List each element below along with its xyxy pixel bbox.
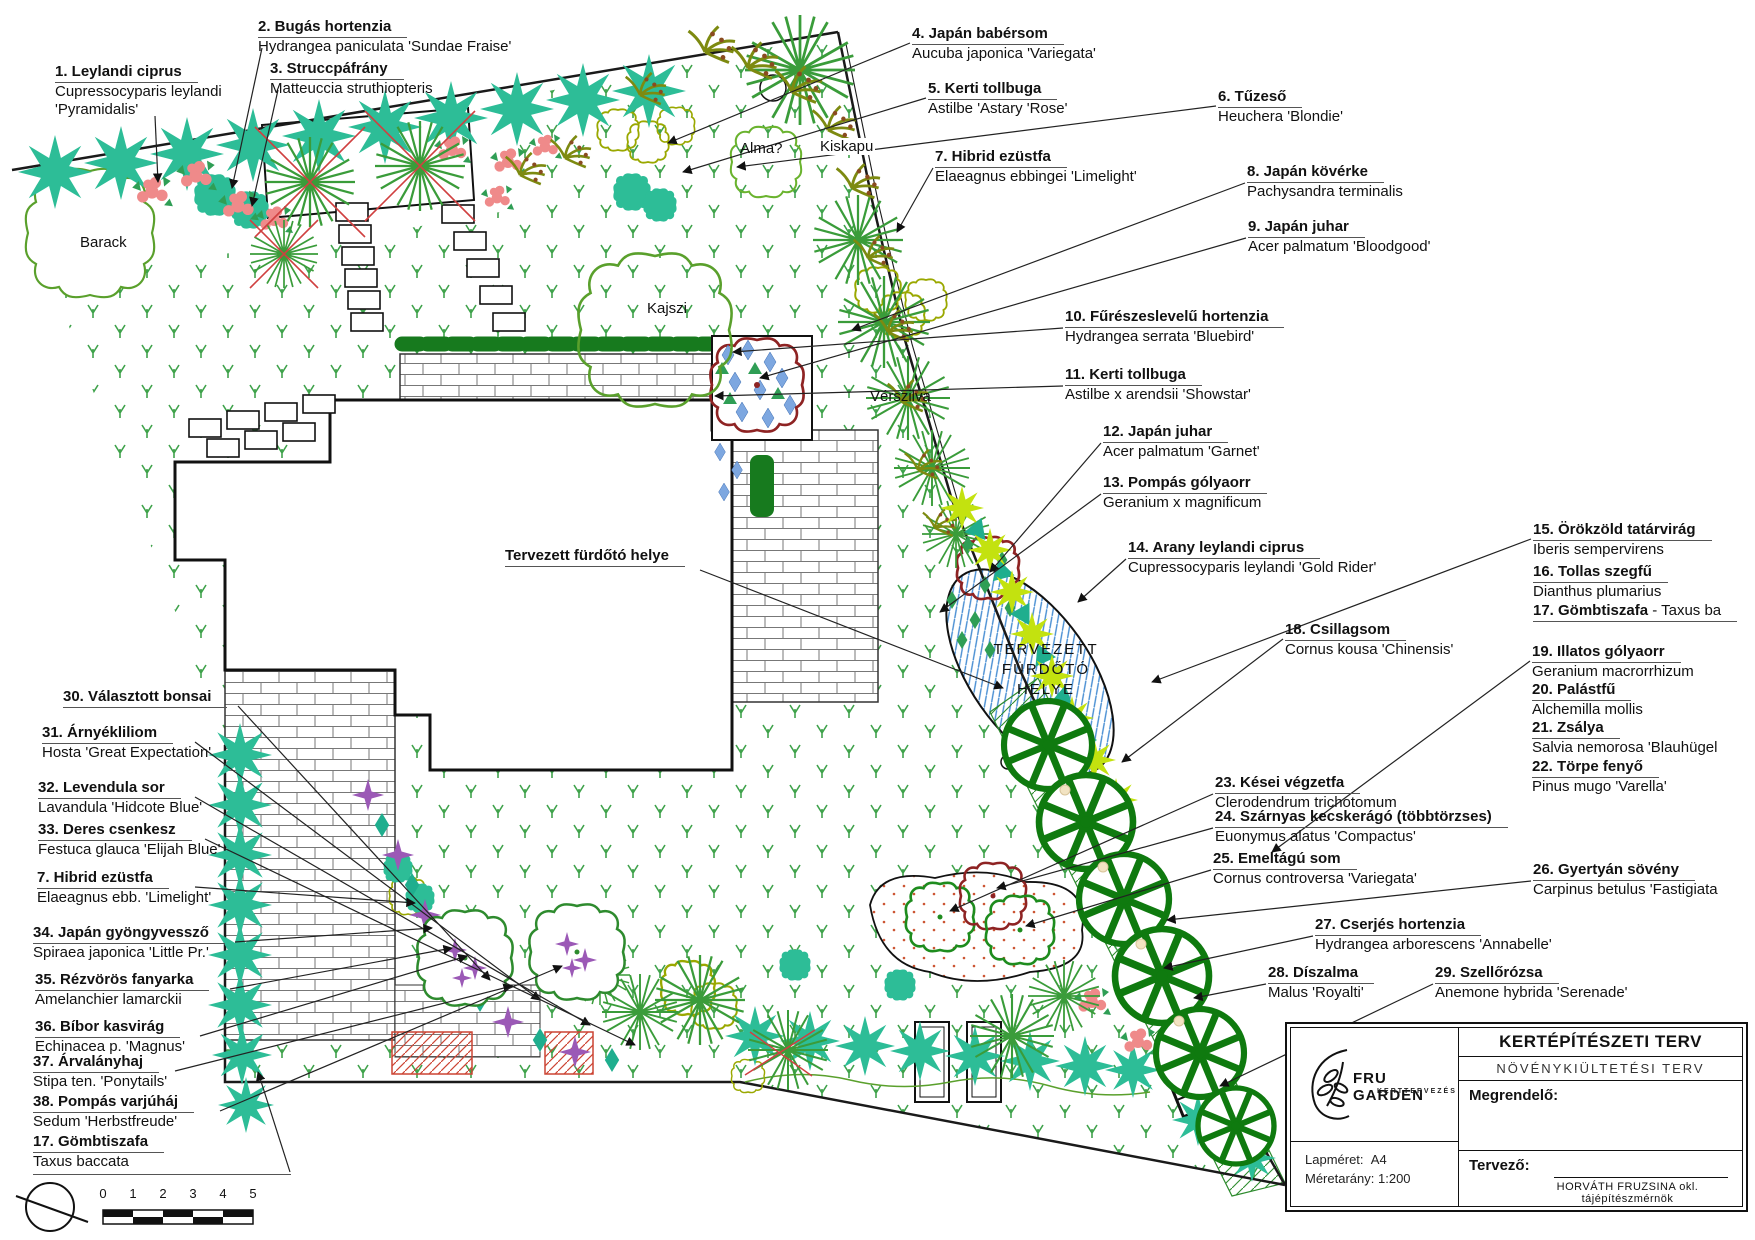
plant-label: 23. Kései végzetfa Clerodendrum trichoto… — [1215, 774, 1397, 812]
plant-label-latin: Carpinus betulus 'Fastigiata — [1533, 881, 1718, 899]
plant-label: 33. Deres csenkesz Festuca glauca 'Elija… — [38, 821, 221, 859]
plant-label-title: 27. Cserjés hortenzia — [1315, 916, 1481, 936]
designer-name: HORVÁTH FRUZSINA okl. tájépítészmérnök — [1519, 1181, 1736, 1205]
plant-label: 7. Hibrid ezüstfa Elaeagnus ebbingei 'Li… — [935, 148, 1137, 186]
plant-label-latin: Astilbe x arendsii 'Showstar' — [1065, 386, 1251, 404]
plant-label-title: 26. Gyertyán sövény — [1533, 861, 1695, 881]
plant-label-latin: Hosta 'Great Expectation' — [42, 744, 211, 762]
client-label: Megrendelő: — [1459, 1081, 1742, 1150]
plant-label-title: 7. Hibrid ezüstfa — [935, 148, 1067, 168]
leader-line — [1078, 559, 1126, 602]
plant-label-title: 24. Szárnyas kecskerágó (többtörzses) — [1215, 808, 1508, 828]
plant-label-latin: Geranium x magnificum — [1103, 494, 1267, 512]
plan-annotation: Kiskapu — [818, 138, 875, 155]
sheet-scale: Méretarány: 1:200 — [1305, 1169, 1458, 1188]
scale-tick: 2 — [159, 1186, 166, 1201]
plant-label-latin: Alchemilla mollis — [1532, 701, 1643, 719]
plant-label-title: 21. Zsálya — [1532, 719, 1620, 739]
signature-line — [1554, 1177, 1728, 1178]
plant-label-latin: Acer palmatum 'Bloodgood' — [1248, 238, 1431, 256]
plant-label-title: 28. Díszalma — [1268, 964, 1374, 984]
plant-label-title: 17. Gömbtiszafa - Taxus ba — [1533, 602, 1737, 622]
plant-label: 3. Struccpáfrány Matteuccia struthiopter… — [270, 60, 433, 98]
plant-label: 6. Tűzeső Heuchera 'Blondie' — [1218, 88, 1343, 126]
plant-label-latin: Aucuba japonica 'Variegata' — [912, 45, 1096, 63]
leader-line — [940, 494, 1101, 612]
plant-label-latin: Hydrangea serrata 'Bluebird' — [1065, 328, 1284, 346]
plant-label-title: 5. Kerti tollbuga — [928, 80, 1057, 100]
plant-label: 29. Szellőrózsa Anemone hybrida 'Serenad… — [1435, 964, 1628, 1002]
plant-label-latin: Anemone hybrida 'Serenade' — [1435, 984, 1628, 1002]
leader-line — [990, 443, 1101, 572]
plant-label-title: 34. Japán gyöngyvessző — [33, 924, 225, 944]
plant-label: 8. Japán kövérke Pachysandra terminalis — [1247, 163, 1403, 201]
plant-label: 35. Rézvörös fanyarka Amelanchier lamarc… — [35, 971, 209, 1009]
plant-label-title: Tervezett fürdőtó helye — [505, 547, 685, 567]
scale-tick: 0 — [99, 1186, 106, 1201]
plant-label: 31. Árnyékliliom Hosta 'Great Expectatio… — [42, 724, 211, 762]
plant-label: 20. Palástfű Alchemilla mollis — [1532, 681, 1643, 719]
plant-label-title: 10. Fűrészeslevelű hortenzia — [1065, 308, 1284, 328]
leader-line — [200, 956, 467, 1036]
scale-tick: 4 — [219, 1186, 226, 1201]
plant-label-latin: Dianthus plumarius — [1533, 583, 1668, 601]
plant-label-title: 2. Bugás hortenzia — [258, 18, 407, 38]
leader-line — [683, 98, 926, 172]
leader-line — [668, 43, 910, 143]
plant-label-title: 11. Kerti tollbuga — [1065, 366, 1202, 386]
fru-garden-logo: FRU GARDEN KERTTERVEZÉS — [1291, 1028, 1458, 1142]
plant-label-latin: Salvia nemorosa 'Blauhügel — [1532, 739, 1717, 757]
plant-label-latin: Festuca glauca 'Elijah Blue' — [38, 841, 221, 859]
plant-label-latin: Iberis sempervirens — [1533, 541, 1712, 559]
plant-label: 11. Kerti tollbuga Astilbe x arendsii 'S… — [1065, 366, 1251, 404]
plant-label-title: 3. Struccpáfrány — [270, 60, 404, 80]
plant-label-title: 8. Japán kövérke — [1247, 163, 1384, 183]
leader-line — [700, 570, 1003, 688]
plant-label: 30. Választott bonsai — [63, 688, 227, 708]
leader-line — [230, 948, 452, 989]
plant-label-latin: Amelanchier lamarckii — [35, 991, 209, 1009]
plant-label: 21. Zsálya Salvia nemorosa 'Blauhügel — [1532, 719, 1717, 757]
plant-label: 16. Tollas szegfű Dianthus plumarius — [1533, 563, 1668, 601]
plant-label-title: 32. Levendula sor — [38, 779, 181, 799]
plant-label-latin: 'Pyramidalis' — [55, 101, 222, 119]
leader-line — [733, 328, 1063, 352]
plant-label-title: 23. Kései végzetfa — [1215, 774, 1360, 794]
logo-text: FRU GARDEN — [1353, 1070, 1458, 1104]
plant-label-title: 6. Tűzeső — [1218, 88, 1302, 108]
leader-line — [195, 742, 540, 1000]
plant-label-latin: Lavandula 'Hidcote Blue' — [38, 799, 202, 817]
leader-line — [195, 797, 590, 1025]
plant-label-latin: Heuchera 'Blondie' — [1218, 108, 1343, 126]
plant-label-title: 25. Emeltágú som — [1213, 850, 1357, 870]
plant-label-title: 35. Rézvörös fanyarka — [35, 971, 209, 991]
leader-line — [1122, 639, 1283, 762]
plant-label: 36. Bíbor kasvirág Echinacea p. 'Magnus' — [35, 1018, 185, 1056]
plant-label-latin: Matteuccia struthiopteris — [270, 80, 433, 98]
leader-line — [950, 794, 1213, 911]
plant-label: 17. Gömbtiszafa Taxus baccata — [33, 1133, 291, 1175]
plant-label-latin: Cupressocyparis leylandi 'Gold Rider' — [1128, 559, 1376, 577]
leader-line — [1026, 870, 1211, 926]
plant-label-title: 14. Arany leylandi ciprus — [1128, 539, 1320, 559]
leader-line — [205, 839, 635, 1045]
plant-label: 10. Fűrészeslevelű hortenzia Hydrangea s… — [1065, 308, 1284, 346]
plant-label-latin: Acer palmatum 'Garnet' — [1103, 443, 1260, 461]
plant-label-title: 20. Palástfű — [1532, 681, 1631, 701]
title-block: FRU GARDEN KERTTERVEZÉS Lapméret: A4 Mér… — [1285, 1022, 1748, 1212]
plant-label: 4. Japán babérsom Aucuba japonica 'Varie… — [912, 25, 1096, 63]
plant-label-title: 7. Hibrid ezüstfa — [37, 869, 169, 889]
scale-tick: 5 — [249, 1186, 256, 1201]
plant-label-latin: Cupressocyparis leylandi — [55, 83, 222, 101]
plant-label-title: 15. Örökzöld tatárvirág — [1533, 521, 1712, 541]
plant-label: 38. Pompás varjúháj Sedum 'Herbstfreude' — [33, 1093, 194, 1131]
plant-label: 28. Díszalma Malus 'Royalti' — [1268, 964, 1374, 1002]
plant-label-title: 12. Japán juhar — [1103, 423, 1228, 443]
plan-annotation: Vérszilva — [870, 388, 931, 405]
plant-label-title: 19. Illatos gólyaorr — [1532, 643, 1681, 663]
plant-label: 12. Japán juhar Acer palmatum 'Garnet' — [1103, 423, 1260, 461]
plant-label-latin: Elaeagnus ebb. 'Limelight' — [37, 889, 211, 907]
plant-label: 14. Arany leylandi ciprus Cupressocypari… — [1128, 539, 1376, 577]
plant-label-title: 37. Árvalányhaj — [33, 1053, 159, 1073]
sheet-size: Lapméret: A4 — [1305, 1150, 1458, 1169]
plant-label-latin: Spiraea japonica 'Little Pr.' — [33, 944, 225, 962]
plant-label-title: 9. Japán juhar — [1248, 218, 1365, 238]
leader-line — [195, 887, 415, 903]
plant-label: 19. Illatos gólyaorr Geranium macrorrhiz… — [1532, 643, 1694, 681]
plant-label-latin: Geranium macrorrhizum — [1532, 663, 1694, 681]
plant-label-title: 36. Bíbor kasvirág — [35, 1018, 180, 1038]
pond-area-text: TERVEZETTFÜRDŐTÓHELYE — [976, 640, 1116, 700]
leader-line — [897, 168, 933, 232]
plant-label-latin: Stipa ten. 'Ponytails' — [33, 1073, 167, 1091]
leader-line — [155, 116, 158, 182]
plant-label-title: 31. Árnyékliliom — [42, 724, 173, 744]
plant-label: 24. Szárnyas kecskerágó (többtörzses) Eu… — [1215, 808, 1508, 846]
plant-label-latin: Taxus baccata — [33, 1153, 291, 1171]
plant-label: 26. Gyertyán sövény Carpinus betulus 'Fa… — [1533, 861, 1718, 899]
plant-label-title: 16. Tollas szegfű — [1533, 563, 1668, 583]
garden-plan-sheet: 1. Leylandi ciprus Cupressocyparis leyla… — [0, 0, 1755, 1240]
plan-annotation: Alma? — [740, 140, 783, 157]
leader-line — [252, 90, 278, 206]
plant-label-title: 1. Leylandi ciprus — [55, 63, 198, 83]
designer-label: Tervező: — [1469, 1157, 1530, 1174]
plant-label: 22. Törpe fenyő Pinus mugo 'Varella' — [1532, 758, 1667, 796]
plant-label-latin: Malus 'Royalti' — [1268, 984, 1374, 1002]
plant-label: Tervezett fürdőtó helye — [505, 547, 685, 567]
plant-label: 25. Emeltágú som Cornus controversa 'Var… — [1213, 850, 1417, 888]
sheet-title: KERTÉPÍTÉSZETI TERV — [1459, 1028, 1742, 1057]
plant-label: 37. Árvalányhaj Stipa ten. 'Ponytails' — [33, 1053, 167, 1091]
plan-annotation: Kajszi — [647, 300, 687, 317]
plant-label-latin: Cornus controversa 'Variegata' — [1213, 870, 1417, 888]
plant-label: 32. Levendula sor Lavandula 'Hidcote Blu… — [38, 779, 202, 817]
plant-label: 5. Kerti tollbuga Astilbe 'Astary 'Rose' — [928, 80, 1067, 118]
plant-label-latin: Astilbe 'Astary 'Rose' — [928, 100, 1067, 118]
leader-line — [232, 48, 262, 188]
leader-line — [1194, 984, 1266, 998]
plant-label: 17. Gömbtiszafa - Taxus ba — [1533, 602, 1737, 622]
plant-label: 2. Bugás hortenzia Hydrangea paniculata … — [258, 18, 511, 56]
plant-label-title: 13. Pompás gólyaorr — [1103, 474, 1267, 494]
scale-tick: 1 — [129, 1186, 136, 1201]
scale-tick: 3 — [189, 1186, 196, 1201]
sheet-subtitle: NÖVÉNYKIÜLTETÉSI TERV — [1459, 1057, 1742, 1081]
plant-label-title: 22. Törpe fenyő — [1532, 758, 1659, 778]
plant-label-title: 17. Gömbtiszafa — [33, 1133, 164, 1153]
plant-label-title: 38. Pompás varjúháj — [33, 1093, 194, 1113]
plant-label-title: 33. Deres csenkesz — [38, 821, 192, 841]
plant-label: 34. Japán gyöngyvessző Spiraea japonica … — [33, 924, 225, 962]
plant-label-latin: Pachysandra terminalis — [1247, 183, 1403, 201]
plant-label-latin: Pinus mugo 'Varella' — [1532, 778, 1667, 796]
leader-line — [220, 966, 562, 1111]
plant-label-title: 4. Japán babérsom — [912, 25, 1064, 45]
plan-annotation: Barack — [80, 234, 127, 251]
plant-label: 27. Cserjés hortenzia Hydrangea arboresc… — [1315, 916, 1552, 954]
plant-label-title: 29. Szellőrózsa — [1435, 964, 1559, 984]
plant-label-title: 30. Választott bonsai — [63, 688, 227, 708]
plant-label-latin: Sedum 'Herbstfreude' — [33, 1113, 194, 1131]
plant-label: 15. Örökzöld tatárvirág Iberis sempervir… — [1533, 521, 1712, 559]
plant-label-latin: Hydrangea paniculata 'Sundae Fraise' — [258, 38, 511, 56]
plant-label: 7. Hibrid ezüstfa Elaeagnus ebb. 'Limeli… — [37, 869, 211, 907]
plant-label-latin: Cornus kousa 'Chinensis' — [1285, 641, 1453, 659]
plant-label-title: 18. Csillagsom — [1285, 621, 1406, 641]
plant-label: 1. Leylandi ciprus Cupressocyparis leyla… — [55, 63, 222, 119]
plant-label: 13. Pompás gólyaorr Geranium x magnificu… — [1103, 474, 1267, 512]
plant-label: 18. Csillagsom Cornus kousa 'Chinensis' — [1285, 621, 1453, 659]
plant-label-latin: Elaeagnus ebbingei 'Limelight' — [935, 168, 1137, 186]
plant-label: 9. Japán juhar Acer palmatum 'Bloodgood' — [1248, 218, 1431, 256]
plant-label-latin: Hydrangea arborescens 'Annabelle' — [1315, 936, 1552, 954]
plant-label-latin: Euonymus alatus 'Compactus' — [1215, 828, 1508, 846]
logo-subtext: KERTTERVEZÉS — [1377, 1088, 1457, 1095]
leader-line — [235, 928, 432, 942]
designer-cell: Tervező: HORVÁTH FRUZSINA okl. tájépítés… — [1459, 1150, 1742, 1206]
